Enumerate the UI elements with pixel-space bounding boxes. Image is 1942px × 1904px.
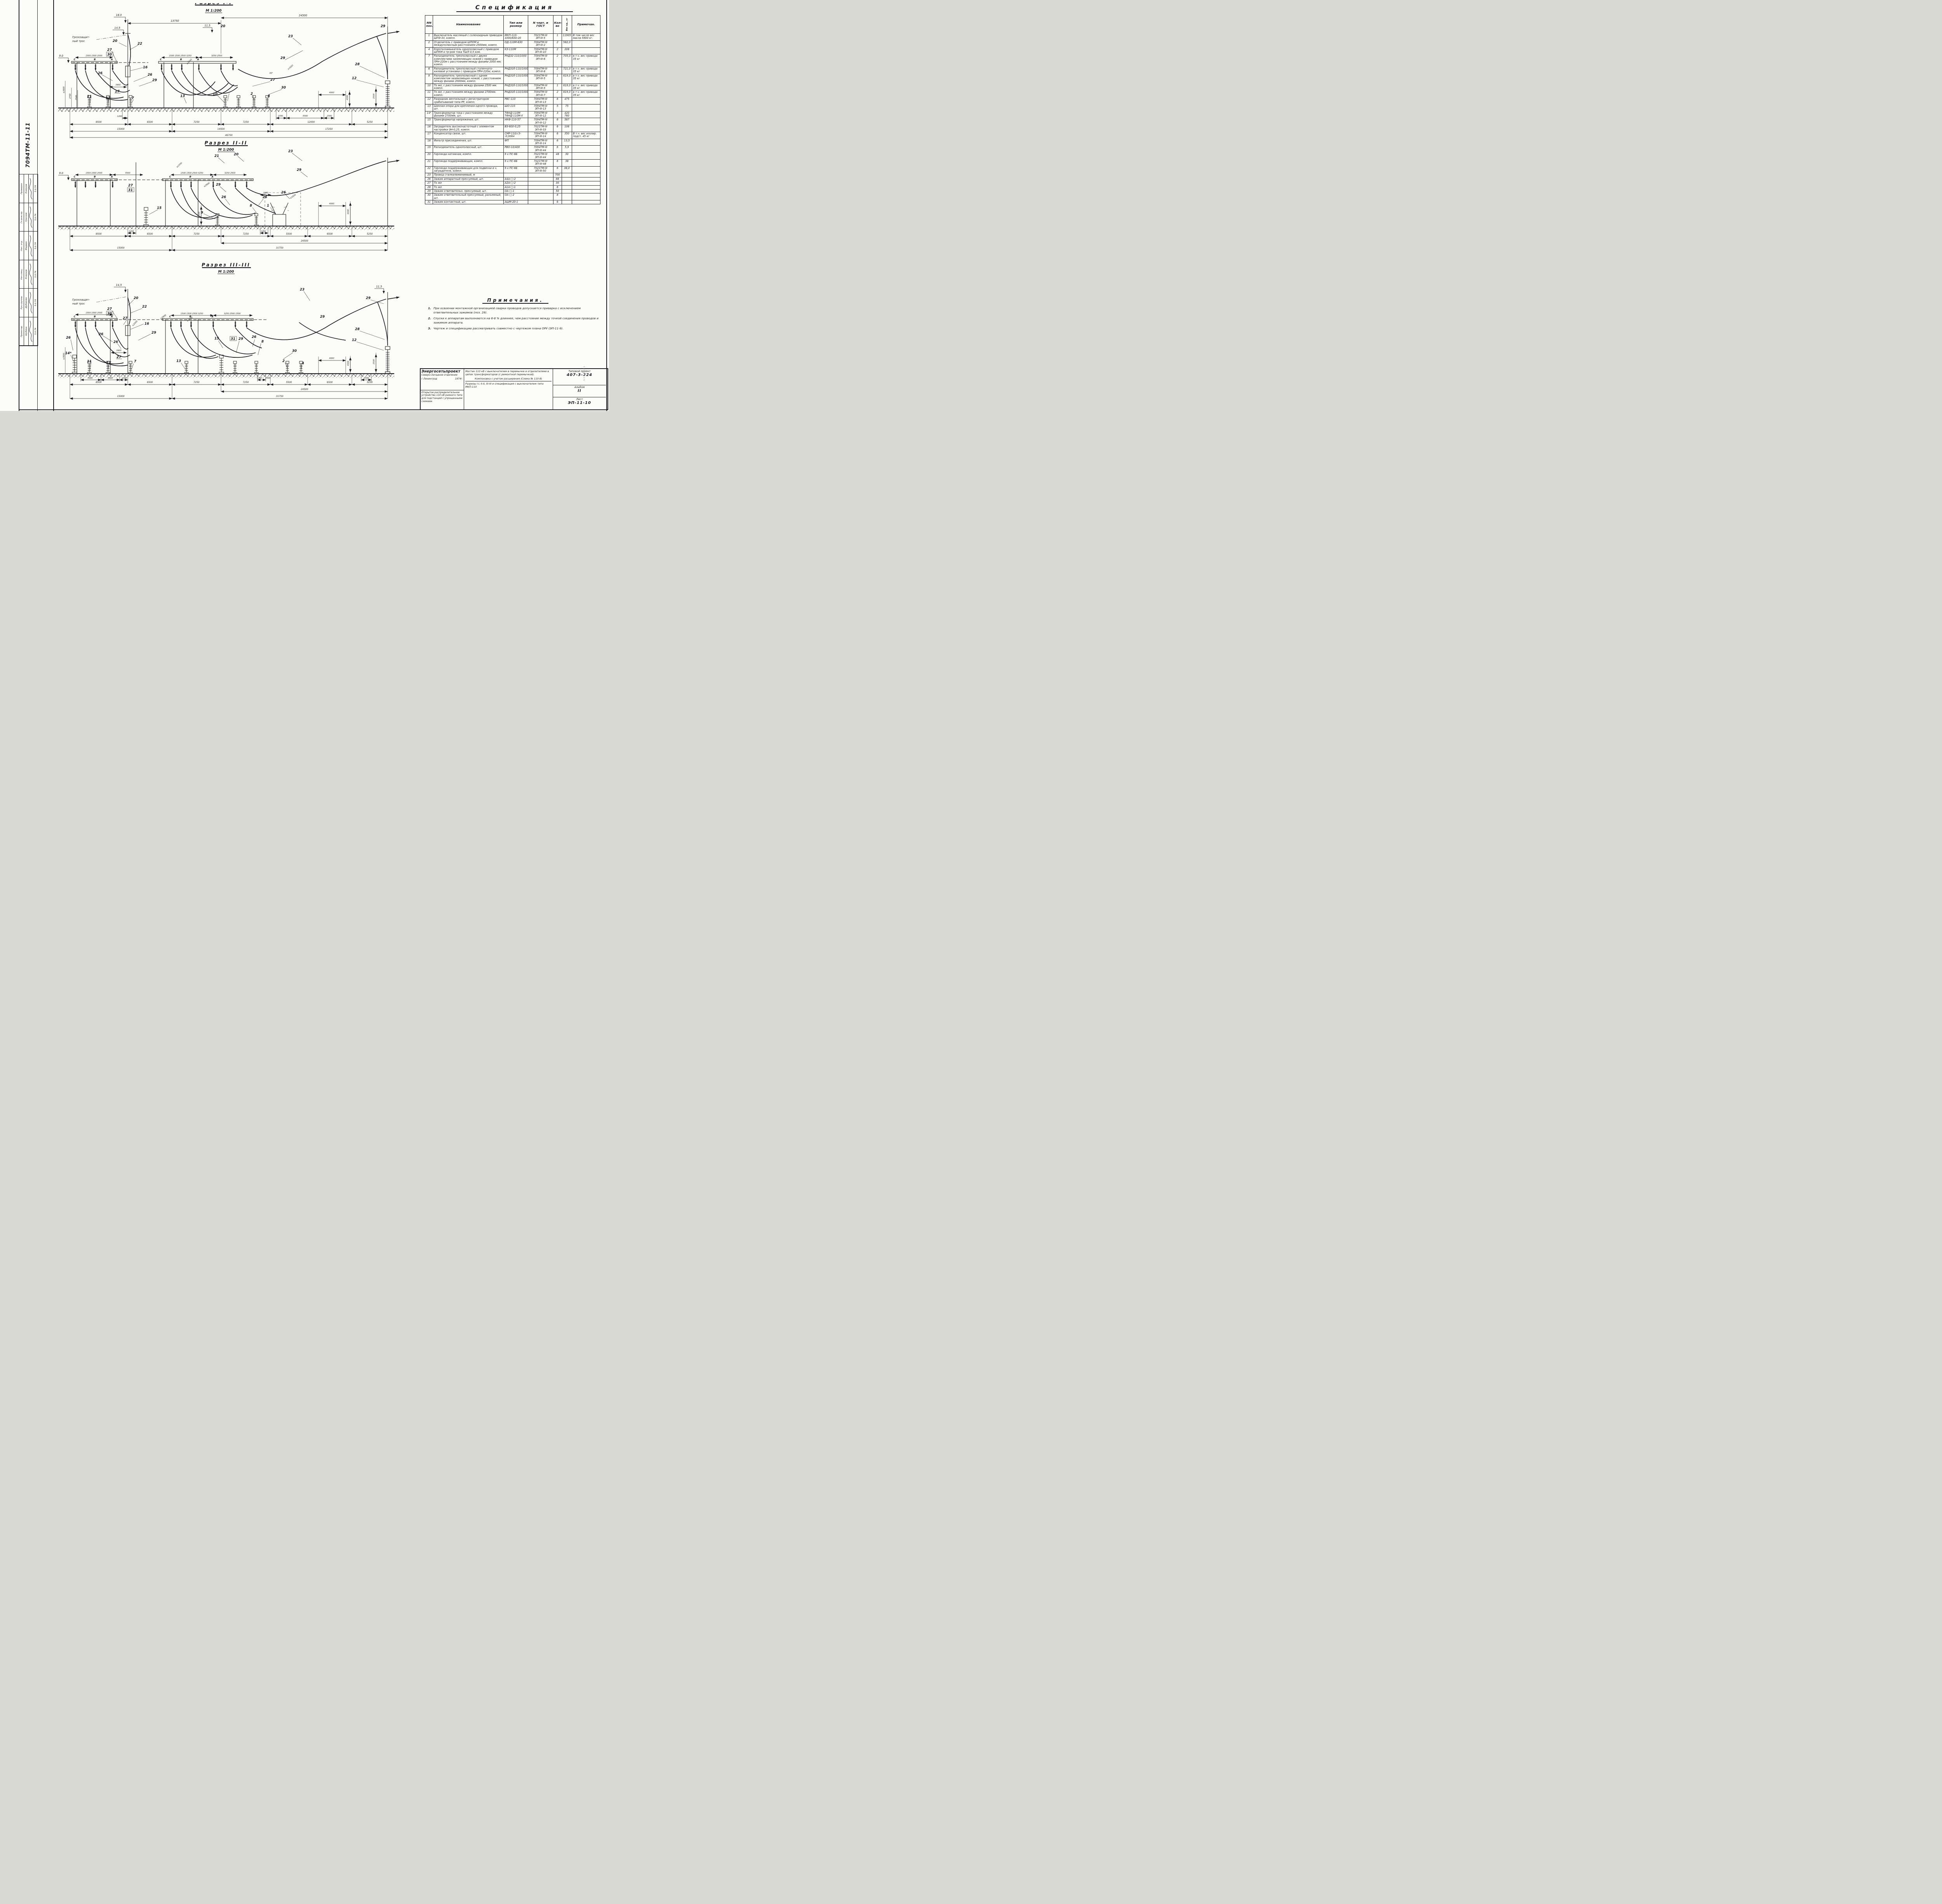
spec-row: 18 Фильтр присоединения, шт. ФП 7094ТМ-I… bbox=[425, 139, 600, 146]
spec-cell-type: А2А-□-2 bbox=[504, 181, 528, 185]
dim-label: 7250 bbox=[193, 121, 199, 124]
dim-label: 7250 bbox=[243, 381, 249, 384]
spec-cell-type: АШМ-20-1 bbox=[504, 200, 528, 204]
spec-cell-name: Отделитель с приводом ШПОМ и междуполюсн… bbox=[433, 40, 504, 47]
spec-cell-pos: 10 bbox=[425, 84, 433, 91]
spec-cell-ref: 7094ТМ-III ЭП-III-10 bbox=[528, 47, 553, 54]
spec-cell-note bbox=[572, 47, 600, 54]
stamp-name: Есионов bbox=[24, 260, 28, 288]
spec-cell-note bbox=[572, 139, 600, 146]
spec-cell-type: РНДЗ1б-110/1000 bbox=[504, 91, 528, 97]
label-lightning-wire: Грозозащит- bbox=[72, 36, 90, 39]
arrester-pole bbox=[385, 26, 391, 108]
spec-cell-pos: 30 bbox=[425, 193, 433, 200]
wires bbox=[75, 297, 399, 366]
phase-label: А bbox=[111, 176, 113, 178]
dim-label: 6500 bbox=[147, 381, 153, 384]
spec-cell-pos: 13 bbox=[425, 104, 433, 111]
dim-label: 1500 1500 2500 3250 bbox=[169, 55, 191, 57]
dim-label: 1550 bbox=[263, 192, 268, 194]
spec-cell-name: Разъединитель трехполюсный с двумя компл… bbox=[433, 54, 504, 67]
spec-row: 4 Короткозамыкатель однополюсный с приво… bbox=[425, 47, 600, 54]
spec-cell-name: Конденсатор связи, шт. bbox=[433, 132, 504, 139]
note-text: При освоении монтажной организацией свар… bbox=[433, 306, 603, 315]
stamp-name: Есионов bbox=[24, 174, 28, 202]
callout-number: 27 bbox=[115, 90, 120, 94]
album-number: II bbox=[553, 389, 606, 393]
phase-label: С bbox=[160, 58, 162, 61]
spec-cell-type bbox=[504, 173, 528, 177]
spec-row: 23 Провод сталеалюминиевый, м 700 bbox=[425, 173, 600, 177]
dim-label: 7250 bbox=[243, 233, 249, 235]
spec-cell-name: То же bbox=[433, 185, 504, 189]
spec-cell-pos: 1 bbox=[425, 34, 433, 41]
spec-cell-weight: 619,0 bbox=[562, 91, 572, 97]
spec-cell-note bbox=[572, 97, 600, 104]
spec-cell-qty: 6 bbox=[553, 125, 562, 132]
spec-cell-type: А4А-□-2 bbox=[504, 177, 528, 181]
spec-cell-pos: 4 bbox=[425, 47, 433, 54]
dim-label: ≥1550 bbox=[176, 162, 183, 169]
dim-label: 3250 2500 1500 bbox=[224, 313, 241, 315]
signature-row: Нач.секц. Есионов 5.II.74 bbox=[19, 260, 38, 289]
callout-number: 14* bbox=[65, 352, 72, 355]
title-block: Энергосетьпроект Северо-Западное отделен… bbox=[420, 368, 608, 410]
spec-cell-ref: 7094ТМ-III ЭП-III-13 bbox=[528, 97, 553, 104]
signature bbox=[28, 174, 33, 202]
spec-cell-weight: 475 bbox=[562, 97, 572, 104]
signature bbox=[28, 289, 33, 317]
spec-cell-qty: 50 bbox=[553, 189, 562, 193]
callout-number: 26 bbox=[263, 195, 267, 199]
callout-number: 27 bbox=[117, 355, 121, 359]
scale-label: М 1:200 bbox=[218, 270, 234, 274]
spec-cell-note: в т.ч. вес привода 35 кг bbox=[572, 67, 600, 74]
callout-number: 31 bbox=[128, 188, 133, 192]
callout-number: 1 bbox=[267, 204, 269, 208]
stamp-role: Проектир. bbox=[19, 317, 24, 345]
spec-cell-type: НКФ-110-57 bbox=[504, 118, 528, 125]
spec-cell-qty: 6 bbox=[553, 118, 562, 125]
section-drawing-III-III: Разрез III-III М 1:200 С В А 1500 1500 2… bbox=[50, 260, 412, 408]
dim-label: 30° bbox=[269, 72, 273, 75]
spec-cell-qty: 48 bbox=[553, 153, 562, 160]
dim-label: ≥3600 bbox=[63, 353, 65, 360]
oil-breaker bbox=[265, 193, 301, 226]
spec-cell-type: КЗ-110М bbox=[504, 47, 528, 54]
spec-row: 13 Шинная опора для крепления одного про… bbox=[425, 104, 600, 111]
label-lightning-wire: ный трос bbox=[72, 302, 85, 305]
dim-label: 2760 bbox=[69, 93, 71, 99]
callout-number: 26 bbox=[221, 195, 226, 199]
callout-number: 4 bbox=[267, 94, 270, 98]
spec-row: 14* Трансформатор тока с расстоянием меж… bbox=[425, 111, 600, 118]
spec-cell-ref: 7094ТМ-III ЭП-III-44 bbox=[528, 146, 553, 153]
callout-number: 21 bbox=[214, 154, 219, 158]
spec-cell-note bbox=[572, 125, 600, 132]
spec-cell-ref: 7021ТМ-III ЭП-III-48 bbox=[528, 159, 553, 166]
dim-label: 6500 bbox=[147, 233, 153, 235]
note-number: 3. bbox=[428, 326, 433, 331]
callout-number: 29 bbox=[280, 56, 285, 60]
spec-cell-qty: 2 bbox=[553, 91, 562, 97]
spec-cell-weight: 721,0 bbox=[562, 67, 572, 74]
spec-cell-type: ОА-□-2 bbox=[504, 193, 528, 200]
spec-row: 27 То же А2А-□-2 30 bbox=[425, 181, 600, 185]
title-block-subject: Мостик 110 кВ с выключателем в перемычке… bbox=[464, 369, 553, 409]
spec-cell-ref bbox=[528, 181, 553, 185]
specification-title: Спецификация bbox=[456, 4, 573, 12]
spec-cell-name: Выключатель масляный с соленоидным приво… bbox=[433, 34, 504, 41]
section-drawing-II-II: Разрез II-II М 1:200 С В А 1500 1500 250… bbox=[50, 140, 412, 260]
org-city: г.Ленинград bbox=[421, 378, 437, 380]
phase-label: В bbox=[94, 176, 96, 178]
dim-label: ≥1650 bbox=[186, 58, 193, 65]
height-mark: 14,5 bbox=[116, 284, 122, 287]
dim-label: ≥2900 bbox=[204, 182, 211, 188]
spec-cell-pos: 20 bbox=[425, 153, 433, 160]
spec-cell-type: РНДЗ1б-110/1000 bbox=[504, 84, 528, 91]
spec-cell-pos: 11 bbox=[425, 91, 433, 97]
dim-label: 46750 bbox=[225, 134, 232, 137]
callout-number: 29 bbox=[320, 315, 325, 319]
dim-label: 3250 2500 bbox=[224, 172, 236, 174]
note-item: 2. Спуски к аппаратам выполняются на 6-8… bbox=[428, 316, 603, 325]
stamp-date: 5.II.74 bbox=[33, 174, 38, 202]
signature-row: Проверил Есионов 5.II.74 bbox=[19, 174, 38, 203]
signature-row: Гл.инж.пр. Гроснов 5.II.74 bbox=[19, 203, 38, 231]
callout-number: 23 bbox=[288, 35, 293, 38]
spec-cell-pos: 18 bbox=[425, 139, 433, 146]
scale-label: М 1:200 bbox=[218, 148, 234, 152]
spec-cell-name: То же bbox=[433, 181, 504, 185]
org-branch: Северо-Западное отделение bbox=[421, 374, 463, 377]
dim-label: 3900 bbox=[115, 84, 121, 86]
dim-label: 3900 bbox=[116, 350, 122, 352]
wires bbox=[171, 160, 399, 219]
signature bbox=[28, 260, 33, 288]
callout-number: 30 bbox=[107, 312, 112, 316]
phase-label: А bbox=[211, 315, 214, 318]
callout-number: 16 bbox=[144, 322, 149, 326]
stamp-role: Нач.секц. bbox=[19, 260, 24, 288]
dim-label: ≥2900 bbox=[160, 314, 167, 320]
stamp-date: 5.II.74 bbox=[33, 289, 38, 317]
dim-label: 7250 bbox=[193, 381, 199, 384]
spec-cell-note bbox=[572, 159, 600, 166]
dim-label: 1200 bbox=[117, 115, 122, 118]
spec-row: 17 Конденсатор связи, шт. СМР-110/√3- -0… bbox=[425, 132, 600, 139]
phase-label: С bbox=[74, 58, 76, 61]
spec-row: 30 Зажим ответвительный прессуемый, разъ… bbox=[425, 193, 600, 200]
spec-row: 22 Гирлянда поддерживающая для подвески … bbox=[425, 166, 600, 173]
dim-label: 4000 bbox=[329, 357, 334, 360]
spec-cell-weight: 420 760 bbox=[562, 111, 572, 118]
spec-cell-ref bbox=[528, 173, 553, 177]
spec-cell-note: В т.ч. вес изолир. подст. 45 кг bbox=[572, 132, 600, 139]
callout-number: 27 bbox=[123, 317, 127, 320]
sheet-number: ЭП-11-10 bbox=[553, 401, 606, 405]
callout-number: 2 bbox=[282, 359, 285, 363]
spec-cell-pos: 7 bbox=[425, 54, 433, 67]
spec-row: 26 Зажим аппаратный прессуемый, шт. А4А-… bbox=[425, 177, 600, 181]
callout-number: 26 bbox=[99, 332, 103, 336]
spec-cell-name: Короткозамыкатель однополюсный с приводо… bbox=[433, 47, 504, 54]
spec-cell-note: в т.ч. вес привода 35 кг bbox=[572, 91, 600, 97]
project-number: 407-3-224 bbox=[553, 373, 606, 377]
dim-label: 1500 1500 2500 bbox=[86, 172, 103, 174]
callout-number: 27 bbox=[270, 78, 275, 82]
stamp-date: 5.II.74 bbox=[33, 317, 38, 345]
dim-label: 24500 bbox=[301, 240, 308, 242]
spec-row: 19 Разъединитель однополюсный, шт. РВО-1… bbox=[425, 146, 600, 153]
wires bbox=[75, 31, 399, 100]
callout-number: 16 bbox=[143, 66, 148, 70]
spec-row: 2 Отделитель с приводом ШПОМ и междуполю… bbox=[425, 40, 600, 47]
spec-cell-ref: 7094ТМ-III ЭП-III-14 bbox=[528, 139, 553, 146]
callout-number: 20 bbox=[134, 296, 138, 300]
phase-label: В bbox=[94, 58, 96, 61]
dim-label: 6500 bbox=[327, 233, 332, 235]
dim-label: 15000 bbox=[117, 247, 124, 249]
dim-label: 31750 bbox=[276, 395, 283, 398]
callout-number: 22 bbox=[137, 42, 142, 46]
callout-number: 29 bbox=[297, 168, 301, 172]
spec-cell-name: Зажим ответвительн. прессуемый, шт. bbox=[433, 189, 504, 193]
height-mark: 11,5 bbox=[376, 285, 382, 288]
dim-label: 1500 bbox=[327, 115, 332, 117]
spec-cell-note: В том числе вес масла 5900 кг. bbox=[572, 34, 600, 41]
callout-number: 29 bbox=[151, 331, 156, 335]
spec-cell-note: в т.ч. вес привода 35 кг bbox=[572, 74, 600, 84]
spec-row: 28 То же А1А-□-1 6 bbox=[425, 185, 600, 189]
phase-label: В bbox=[94, 315, 96, 318]
dim-label: 4300 bbox=[347, 209, 350, 214]
spec-cell-type: МКП-110- 1000/630-20 bbox=[504, 34, 528, 41]
spec-cell-weight: 619,0 bbox=[562, 74, 572, 84]
spec-cell-note bbox=[572, 111, 600, 118]
spec-cell-pos: 17 bbox=[425, 132, 433, 139]
spec-cell-note bbox=[572, 118, 600, 125]
spec-cell-ref: 7094ТМ-III ЭП-III-5 bbox=[528, 74, 553, 84]
spec-cell-pos: 14* bbox=[425, 111, 433, 118]
spec-cell-ref: 7094ТМ-III ЭП-III-14 bbox=[528, 132, 553, 139]
dim-label: 12000 bbox=[307, 121, 315, 124]
spec-cell-type: 9 х ПС-6Б bbox=[504, 153, 528, 160]
dim-label: 1550 bbox=[278, 115, 283, 117]
spec-cell-type: РВС-110 bbox=[504, 97, 528, 104]
spec-cell-pos: 22 bbox=[425, 166, 433, 173]
callout-number: 11 bbox=[87, 95, 92, 99]
callout-number: 15 bbox=[157, 206, 162, 210]
spec-header-weight: Вес ед., кг bbox=[562, 16, 572, 34]
spec-cell-type: РНДЗ1б-110/1000 bbox=[504, 74, 528, 84]
spec-cell-ref: 7094ТМ-III ЭП-III-5 bbox=[528, 84, 553, 91]
spec-cell-name: Разъединитель трехполюсный с одним компл… bbox=[433, 74, 504, 84]
dim-label: 1500 1500 2500 3250 bbox=[181, 313, 203, 315]
stamp-name: Дубовчик bbox=[24, 289, 28, 317]
dim-label: ≥1650 bbox=[287, 64, 294, 70]
spec-cell-pos: 31 bbox=[425, 200, 433, 204]
spec-cell-ref: 7094ТМ-III ЭП-III-7 bbox=[528, 91, 553, 97]
spec-cell-name: Провод сталеалюминиевый, м bbox=[433, 173, 504, 177]
spec-cell-type: А1А-□-1 bbox=[504, 185, 528, 189]
spec-cell-name: Шинная опора для крепления одного провод… bbox=[433, 104, 504, 111]
callout-number: 27 bbox=[107, 307, 112, 311]
dim-label: 5500 bbox=[303, 115, 308, 117]
spec-cell-note bbox=[572, 181, 600, 185]
stamp-date: 5.II.74 bbox=[33, 203, 38, 231]
title-block-right: Типовой проект 407-3-224 Альбом II Лист … bbox=[553, 369, 606, 409]
spec-cell-pos: 29 bbox=[425, 189, 433, 193]
spec-cell-type: РВО-10/400 bbox=[504, 146, 528, 153]
label-lightning-wire: Грозозащит- bbox=[72, 298, 90, 301]
spec-cell-type: ОА-□-1 bbox=[504, 189, 528, 193]
subject-line-1: Мостик 110 кВ с выключателем в перемычке… bbox=[465, 370, 552, 376]
spec-cell-name: Гирлянда поддерживающая для подвески в ч… bbox=[433, 166, 504, 173]
spec-cell-name: Фильтр присоединения, шт. bbox=[433, 139, 504, 146]
note-item: 3. Чертеж и спецификацию рассматривать с… bbox=[428, 326, 603, 331]
spec-cell-name: Разъединитель трехполюсный ступенчато-ки… bbox=[433, 67, 504, 74]
spec-header-row: NN поз. Наименование Тип или размер N че… bbox=[425, 16, 600, 34]
height-mark: 9.0 bbox=[59, 54, 63, 57]
callout-number: 7 bbox=[132, 96, 134, 100]
dim-label: 13750 bbox=[171, 19, 179, 23]
spec-cell-weight: 5,9 bbox=[562, 146, 572, 153]
notes-block: Примечания. 1. При освоении монтажной ор… bbox=[428, 298, 603, 332]
spec-cell-note bbox=[572, 40, 600, 47]
signature bbox=[28, 317, 33, 345]
spec-cell-qty: 1 bbox=[553, 34, 562, 41]
spec-cell-qty: 2 bbox=[553, 54, 562, 67]
spec-cell-qty: 2 bbox=[553, 47, 562, 54]
ground-hatch bbox=[58, 226, 394, 230]
callout-number: 26 bbox=[148, 73, 152, 77]
ground-hatch bbox=[58, 108, 394, 112]
spec-header-name: Наименование bbox=[433, 16, 504, 34]
note-number: 1. bbox=[428, 306, 433, 315]
phase-label: А bbox=[111, 58, 113, 61]
stamp-role: Проверил bbox=[19, 174, 24, 202]
spec-cell-type: ФП bbox=[504, 139, 528, 146]
spec-cell-note bbox=[572, 166, 600, 173]
callout-number: 28 bbox=[355, 327, 360, 331]
spec-row: 7 Разъединитель трехполюсный с двумя ком… bbox=[425, 54, 600, 67]
project-label: Типовой проект bbox=[553, 370, 606, 373]
signature-row: Рук.группы Дубовчик 5.II.74 bbox=[19, 289, 38, 317]
dim-label: 5500 bbox=[286, 381, 292, 384]
org-name: Энергосетьпроект bbox=[421, 370, 463, 374]
spec-row: 11 То же, с расстоянием между фазами 270… bbox=[425, 91, 600, 97]
stamp-role: Рук.группы bbox=[19, 289, 24, 317]
dim-label: ≥1650 bbox=[290, 193, 297, 199]
spec-row: 15 Трансформатор напряжения, шт. НКФ-110… bbox=[425, 118, 600, 125]
sheet-label: Лист bbox=[553, 398, 606, 401]
spec-cell-name: Гирлянда натяжная, компл. bbox=[433, 153, 504, 160]
spec-cell-weight: 587 bbox=[562, 118, 572, 125]
spec-cell-weight bbox=[562, 193, 572, 200]
callout-number: 12 bbox=[352, 77, 357, 80]
dim-label: 7250 bbox=[193, 233, 199, 235]
spec-cell-ref: 7094ТМ-III ЭП-III-8 bbox=[528, 67, 553, 74]
callout-number: 17 bbox=[106, 361, 111, 365]
spec-cell-weight: 11905 bbox=[562, 34, 572, 41]
spec-cell-qty: 2 bbox=[553, 67, 562, 74]
spec-cell-weight: 705,0 bbox=[562, 54, 572, 67]
portal-structure bbox=[71, 318, 117, 374]
height-mark: 18.0 bbox=[116, 14, 122, 17]
callout-number: 7 bbox=[134, 360, 136, 364]
section-title: Разрез III-III bbox=[202, 262, 251, 268]
spec-cell-note bbox=[572, 193, 600, 200]
spec-cell-ref: 7094ТМ-III ЭП-III-13 bbox=[528, 104, 553, 111]
watermark: NORMACS bbox=[583, 365, 586, 381]
spec-cell-type: 9 х ПС-6Б bbox=[504, 166, 528, 173]
signature-row: Нач. отд. Фадвин 5.II.74 bbox=[19, 231, 38, 260]
dim-label: ≥3600 bbox=[63, 86, 65, 93]
callout-number: 27 bbox=[128, 184, 133, 188]
specification-block: Спецификация NN поз. Наименование Тип ил… bbox=[425, 4, 604, 204]
note-item: 1. При освоении монтажной организацией с… bbox=[428, 306, 603, 315]
spec-cell-note bbox=[572, 146, 600, 153]
note-text: Чертеж и спецификацию рассматривать совм… bbox=[433, 326, 564, 331]
callout-number: 20 bbox=[221, 24, 225, 28]
callout-number: 8 bbox=[261, 340, 264, 344]
spec-header-ref: N черт. и ГОСТ bbox=[528, 16, 553, 34]
portal-structure bbox=[71, 61, 117, 108]
spec-cell-weight: 30 bbox=[562, 153, 572, 160]
spec-cell-ref bbox=[528, 177, 553, 181]
height-mark: 9.0 bbox=[59, 172, 63, 175]
spec-header-type: Тип или размер bbox=[504, 16, 528, 34]
callout-number: 17 bbox=[106, 96, 110, 100]
spec-cell-pos: 26 bbox=[425, 177, 433, 181]
album-label: Альбом bbox=[553, 386, 606, 389]
callout-number: 31 bbox=[231, 337, 235, 341]
stamp-name: Гроснов bbox=[24, 203, 28, 231]
dim-label: 1500 1500 2500 bbox=[86, 312, 103, 314]
callout-number: 12 bbox=[352, 338, 357, 342]
spec-cell-qty: 6 bbox=[553, 132, 562, 139]
callout-number: 22 bbox=[142, 305, 147, 309]
callout-number: 20 bbox=[234, 153, 238, 157]
callout-number: 26 bbox=[98, 71, 103, 75]
spec-cell-weight: 350 bbox=[562, 132, 572, 139]
spec-cell-ref: 7094ТМ-III ЭП-III-2 bbox=[528, 40, 553, 47]
phase-label: А bbox=[111, 315, 113, 318]
callout-number: 27 bbox=[107, 48, 112, 52]
spec-cell-note: в т.ч. вес привода 35 кг bbox=[572, 54, 600, 67]
dim-label: 14500 bbox=[217, 128, 224, 131]
phase-label: С bbox=[169, 315, 171, 318]
spec-cell-qty: 6 bbox=[553, 139, 562, 146]
callout-number: 29 bbox=[366, 296, 371, 300]
spec-cell-weight: 582,0 bbox=[562, 40, 572, 47]
callout-number: 29 bbox=[152, 78, 157, 82]
spec-cell-weight bbox=[562, 200, 572, 204]
dim-label: 5500 bbox=[286, 233, 292, 235]
signature-row: Проектир. Шубина 5.II.74 bbox=[19, 317, 38, 346]
org-object: Открытое распределительное устройство 11… bbox=[421, 390, 464, 409]
spec-row: 9 Разъединитель трехполюсный с одним ком… bbox=[425, 74, 600, 84]
dim-label: 1200 bbox=[257, 377, 262, 379]
dim-label: 1500 bbox=[364, 377, 369, 379]
spec-cell-qty: 5 bbox=[553, 104, 562, 111]
dim-label: 5250 bbox=[367, 121, 372, 124]
spec-cell-weight bbox=[562, 177, 572, 181]
spec-cell-qty: 1 bbox=[553, 84, 562, 91]
dim-label: 5250 bbox=[367, 233, 372, 235]
